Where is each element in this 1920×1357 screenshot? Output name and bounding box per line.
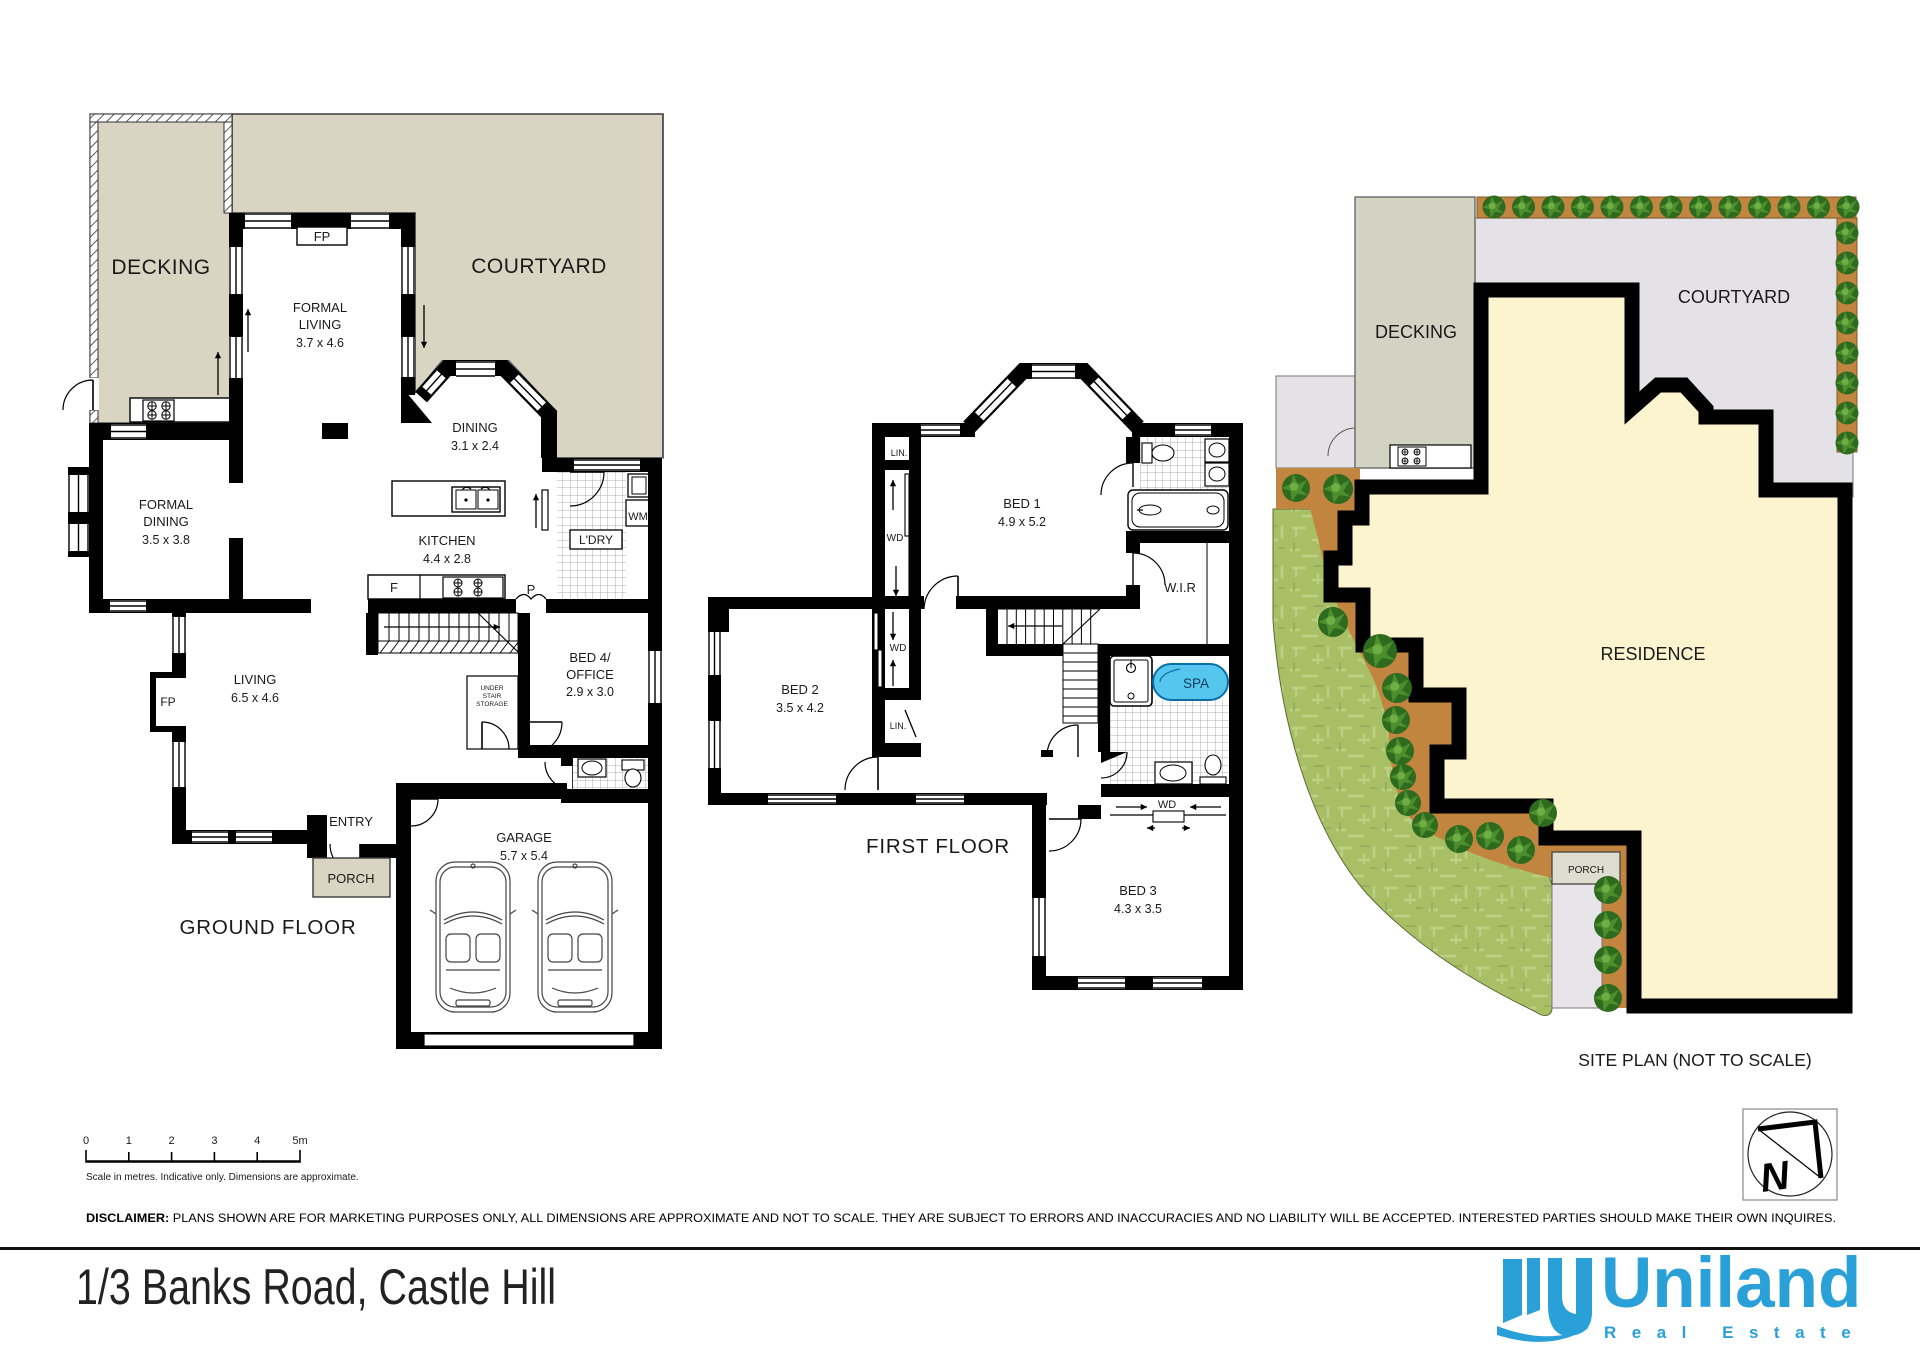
svg-text:3.5 x 4.2: 3.5 x 4.2 — [776, 701, 824, 715]
svg-text:WD: WD — [887, 533, 904, 544]
svg-text:UNDER: UNDER — [480, 685, 503, 692]
svg-text:FORMAL: FORMAL — [139, 497, 193, 512]
svg-text:4: 4 — [254, 1135, 260, 1147]
svg-text:SITE PLAN (NOT TO SCALE): SITE PLAN (NOT TO SCALE) — [1578, 1050, 1811, 1070]
svg-text:WM: WM — [628, 511, 648, 523]
svg-text:4.9 x 5.2: 4.9 x 5.2 — [998, 515, 1046, 529]
svg-text:BED 1: BED 1 — [1003, 496, 1041, 511]
svg-text:OFFICE: OFFICE — [566, 667, 614, 682]
svg-text:WD: WD — [1158, 799, 1176, 811]
svg-text:FP: FP — [314, 229, 331, 244]
svg-text:1/3 Banks Road, Castle Hill: 1/3 Banks Road, Castle Hill — [76, 1259, 556, 1315]
svg-text:LIN.: LIN. — [891, 448, 908, 458]
svg-text:3.7 x 4.6: 3.7 x 4.6 — [296, 336, 344, 350]
svg-text:DECKING: DECKING — [1375, 322, 1457, 342]
svg-text:6.5 x 4.6: 6.5 x 4.6 — [231, 691, 279, 705]
svg-text:BED 3: BED 3 — [1119, 883, 1157, 898]
svg-text:P: P — [527, 582, 536, 597]
svg-text:DISCLAIMER: PLANS SHOWN ARE FO: DISCLAIMER: PLANS SHOWN ARE FOR MARKETIN… — [86, 1211, 1836, 1225]
svg-text:0: 0 — [83, 1135, 89, 1147]
svg-text:KITCHEN: KITCHEN — [418, 533, 475, 548]
svg-text:4.3 x 3.5: 4.3 x 3.5 — [1114, 902, 1162, 916]
svg-text:1: 1 — [126, 1135, 132, 1147]
svg-text:F: F — [390, 580, 398, 595]
svg-text:5.7 x 5.4: 5.7 x 5.4 — [500, 849, 548, 863]
svg-text:SPA: SPA — [1183, 676, 1209, 691]
svg-text:BED 2: BED 2 — [781, 682, 819, 697]
svg-text:3.5 x 3.8: 3.5 x 3.8 — [142, 533, 190, 547]
svg-text:LIN.: LIN. — [890, 721, 907, 731]
svg-text:Scale in metres. Indicative on: Scale in metres. Indicative only. Dimens… — [86, 1172, 359, 1183]
svg-text:STAIR: STAIR — [483, 693, 502, 700]
svg-text:3: 3 — [211, 1135, 217, 1147]
svg-text:FIRST FLOOR: FIRST FLOOR — [866, 835, 1010, 858]
svg-text:FORMAL: FORMAL — [293, 300, 347, 315]
svg-text:Real Estate: Real Estate — [1604, 1323, 1866, 1342]
svg-text:2: 2 — [169, 1135, 175, 1147]
svg-text:LIVING: LIVING — [234, 672, 277, 687]
svg-text:DECKING: DECKING — [111, 256, 210, 279]
svg-text:GARAGE: GARAGE — [496, 830, 552, 845]
svg-text:ENTRY: ENTRY — [329, 814, 373, 829]
svg-text:PORCH: PORCH — [328, 871, 375, 886]
svg-text:PORCH: PORCH — [1568, 865, 1604, 876]
svg-text:Uniland: Uniland — [1601, 1244, 1861, 1323]
svg-text:STORAGE: STORAGE — [476, 701, 508, 708]
svg-text:WD: WD — [890, 643, 907, 654]
svg-text:DINING: DINING — [452, 420, 498, 435]
svg-text:5m: 5m — [292, 1135, 307, 1147]
svg-text:DINING: DINING — [143, 514, 189, 529]
svg-text:W.I.R: W.I.R — [1164, 580, 1196, 595]
svg-text:L'DRY: L'DRY — [579, 533, 613, 547]
svg-text:RESIDENCE: RESIDENCE — [1600, 644, 1705, 664]
svg-text:2.9 x 3.0: 2.9 x 3.0 — [566, 685, 614, 699]
svg-text:COURTYARD: COURTYARD — [1678, 287, 1790, 307]
svg-text:COURTYARD: COURTYARD — [471, 255, 607, 278]
svg-text:3.1 x 2.4: 3.1 x 2.4 — [451, 439, 499, 453]
svg-text:FP: FP — [160, 695, 175, 709]
svg-text:4.4 x 2.8: 4.4 x 2.8 — [423, 552, 471, 566]
svg-text:GROUND FLOOR: GROUND FLOOR — [179, 916, 356, 939]
svg-text:LIVING: LIVING — [299, 317, 342, 332]
svg-text:BED 4/: BED 4/ — [569, 650, 611, 665]
